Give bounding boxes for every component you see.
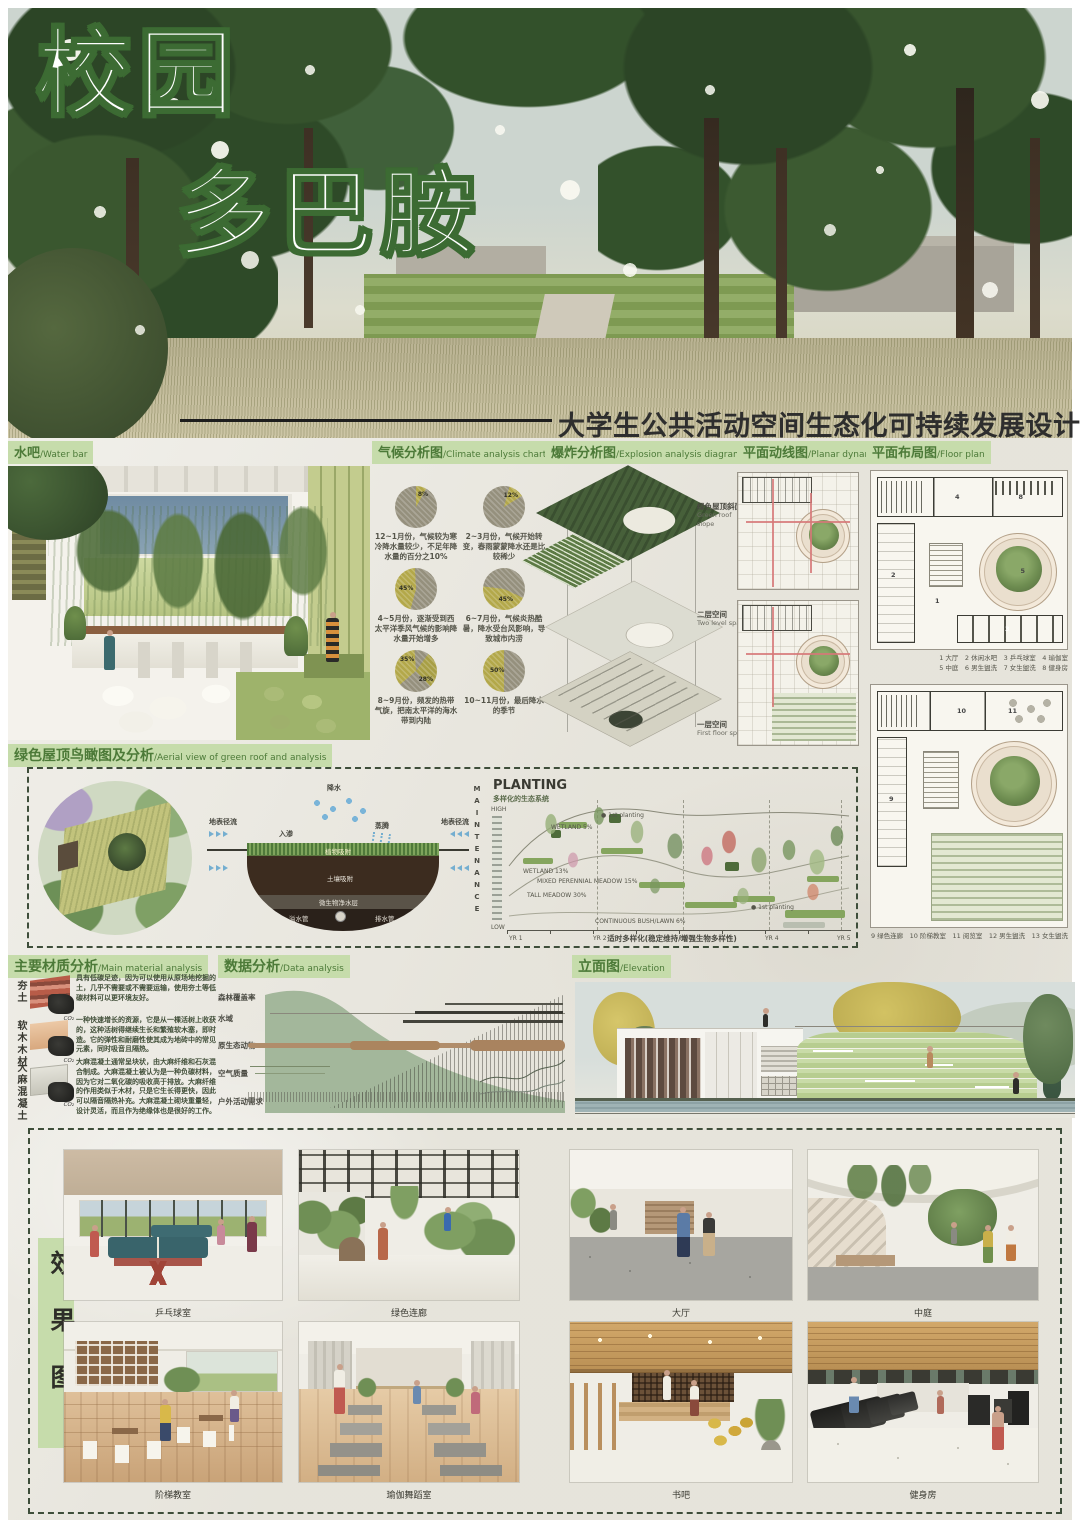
render-caption: 乒乓球室 (113, 1306, 233, 1319)
section-label-explosion: 爆炸分析图/Explosion analysis diagram (545, 441, 748, 464)
bench (836, 1255, 896, 1266)
stairs-block (929, 543, 963, 587)
ceiling (570, 1150, 792, 1189)
annotation-bush: CONTINUOUS BUSH/LAWN 6% (595, 918, 686, 925)
air-quality-line-1 (250, 1066, 330, 1067)
table-legs (121, 1261, 195, 1285)
stair-hatch (881, 695, 921, 727)
co2-label: CO₂ (64, 1102, 74, 1108)
climate-pie-cell-2: 12% 2~3月份，气候开始转变，春雨蒙蒙降水还是比较稀少 (462, 486, 546, 562)
render-caption: 大厅 (621, 1306, 741, 1319)
cork-text: 一种快速增长的资源，它是从一棵活树上收获的，这种活树得继续生长和繁殖软木塞，即时… (76, 1016, 216, 1055)
render-caption: 阶梯教室 (113, 1488, 233, 1501)
overflow-pipe-label: 溢水管 (289, 913, 309, 923)
greenroof-label-en: /Aerial view of green roof and analysis (154, 753, 326, 763)
pie-value-label-2: 28% (419, 676, 433, 683)
rooms-band (742, 477, 812, 503)
figure-yoga-right (471, 1392, 480, 1414)
render-caption: 绿色连廊 (349, 1306, 469, 1319)
circulation-line-h (746, 521, 850, 523)
runoff-arrows-left-lower (209, 865, 228, 871)
pie-chart-apr-may: 45% (395, 568, 437, 610)
annotation-tall-meadow: TALL MEADOW 30% (527, 892, 587, 899)
room-number: 2 (891, 571, 896, 579)
courtyard-tree (809, 520, 839, 550)
floor-plan-1: 1 2 3 4 5 8 (870, 470, 1068, 650)
room-number: 4 (955, 493, 960, 501)
figure-far (937, 1396, 944, 1414)
climate-pie-cell-6: 50% 10~11月份，最后降水的季节 (462, 650, 546, 716)
figure-far-left (610, 1210, 617, 1230)
pie-chart-aug-sep: 35% 28% (395, 650, 437, 692)
runoff-arrows-right-lower (450, 865, 469, 871)
section-label-elevation: 立面图/Elevation (572, 955, 671, 978)
hempcrete-text: 大麻混凝土通常呈块状，由大麻纤维和石灰混合制成。大麻混凝土被认为是一种负碳材料，… (76, 1058, 216, 1117)
annotation-wetland5: WETLAND 5% (551, 824, 593, 831)
circulation-line-h (746, 653, 850, 655)
figure-on-lawn (927, 1052, 933, 1068)
left-plants (570, 1186, 614, 1243)
cork-image: CO₂ (28, 1018, 74, 1062)
hempcrete-image: CO₂ (28, 1062, 74, 1106)
courtyard-tree (990, 756, 1040, 806)
render-atrium (808, 1150, 1038, 1300)
ceiling (64, 1150, 282, 1195)
room-number: 8 (1018, 493, 1023, 501)
greenroof-dashed-box: 降水 地表径流 入渗 蒸腾 地表径流 植物吸附 土壤吸附 微生物净水层 溢水管 … (27, 767, 858, 948)
small-window-grid (761, 1076, 801, 1096)
pie-caption: 10~11月份，最后降水的季节 (462, 696, 546, 716)
maintenance-vertical-label: MAINTENANCE (473, 785, 481, 940)
legend-line-2: 5 中庭 6 男生盥洗 7 女生盥洗 8 健身房 (939, 664, 1068, 674)
figure-on-roof (763, 1014, 768, 1027)
water-bar-label-zh: 水吧 (14, 446, 40, 461)
figure-woman (104, 636, 115, 670)
figure-backpack (677, 1213, 690, 1257)
figure-at-shelf (663, 1376, 671, 1400)
roof-terrace-hatch (772, 693, 856, 741)
base-line (575, 1113, 1075, 1114)
effects-dashed-box: 效果图 (28, 1128, 1062, 1514)
louvre-window-block (625, 1038, 701, 1098)
render-stepped-classroom (64, 1322, 282, 1482)
legend-line-3: 9 绿色连廊 10 阶梯教室 11 阅览室 12 男生盥洗 13 女生盥洗 (871, 932, 1068, 942)
axis-high-label: HIGH (491, 806, 506, 813)
second-floor-opening (616, 617, 684, 652)
figure-yellow (983, 1231, 993, 1263)
runoff-arrows-left-upper (209, 831, 228, 837)
water-bar-label-en: /Water bar (40, 450, 87, 460)
pie-caption: 4~5月份，逐渐受到西太平洋季风气候的影响降水量开始增多 (374, 614, 458, 644)
row-label-water: 水域 (218, 1013, 233, 1024)
plant-mass (160, 1364, 204, 1396)
figure-far (951, 1228, 957, 1244)
room-number: 3 (1005, 625, 1010, 633)
render-yoga-room (299, 1322, 519, 1482)
building-entrance (58, 841, 78, 872)
greenroof-label-zh: 绿色屋顶鸟瞰图及分析 (14, 748, 154, 764)
figure-orange (1006, 1231, 1016, 1261)
layer-microbe-label: 微生物净水层 (319, 897, 358, 907)
subtitle-divider-line (180, 419, 552, 422)
ground-line-left (207, 849, 249, 851)
pie-caption: 6~7月份，气候炎热酷暑，降水受台风影响，导致城市内涝 (462, 614, 546, 644)
poster-title-line2: 多巴胺 (176, 166, 482, 262)
data-label-en: /Data analysis (280, 964, 344, 974)
planar-label-zh: 平面动线图 (743, 446, 808, 461)
figure-right (1013, 1078, 1019, 1094)
axis-low-label: LOW (491, 924, 505, 931)
rain-label: 降水 (327, 783, 341, 793)
render-caption: 健身房 (863, 1488, 983, 1501)
overflow-pipe-icon (335, 911, 346, 922)
poster-title-line1: 校园 (36, 26, 240, 122)
poster: 校园 多巴胺 大学生公共活动空间生态化可持续发展设计 水吧/Water bar … (0, 0, 1080, 1527)
runoff-right-label: 地表径流 (441, 817, 469, 827)
bookshelf (75, 1341, 158, 1386)
circulation-line-v (772, 607, 774, 707)
table-1 (112, 1428, 138, 1434)
annotation-first-planting: ● 1st planting (601, 812, 644, 819)
tan-bar-thick-2 (470, 1040, 565, 1051)
material-name-rammed-earth: 夯土 (13, 980, 28, 1004)
courtyard-circle (796, 509, 850, 563)
runoff-arrows-right-upper (450, 831, 469, 837)
courtyard-tree (996, 546, 1042, 592)
planting-panel: PLANTING 多样化的生态系统 HIGH LOW YR 1 YR 2 YR … (489, 772, 855, 947)
pie-value-label: 12% (504, 492, 518, 499)
roof-opening (612, 501, 686, 539)
material-name-cork: 软木木材 (13, 1020, 28, 1068)
aerial-view-circle (38, 781, 192, 935)
figure-yoga-standing (334, 1370, 345, 1414)
green-roof-terrace (931, 833, 1063, 921)
left-wing (877, 523, 915, 643)
room-number: 11 (1008, 707, 1017, 715)
pie-chart-jun-jul: 45% (483, 568, 525, 610)
plant-left (356, 1376, 378, 1398)
wood-slat-ceiling (808, 1322, 1038, 1370)
stair-hatch (881, 481, 925, 513)
pie-chart-oct-nov: 50% (483, 650, 525, 692)
section-label-planar: 平面动线图/Planar dynamic (737, 441, 887, 464)
floor-plan-2: 9 10 11 (870, 684, 1068, 928)
rain-garden-diagram: 降水 地表径流 入渗 蒸腾 地表径流 植物吸附 土壤吸附 微生物净水层 溢水管 … (207, 777, 469, 945)
section-label-greenroof: 绿色屋顶鸟瞰图及分析/Aerial view of green roof and… (8, 744, 332, 767)
pie-value-label: 45% (399, 585, 413, 592)
layer-plant-label: 植物吸附 (325, 846, 351, 856)
climate-label-zh: 气候分析图 (378, 446, 443, 461)
mid-glass-panel (705, 1032, 757, 1098)
left-bar-seats (570, 1383, 619, 1460)
pie-chart-dec-jan: 8% (395, 486, 437, 528)
explosion-label-en: /Explosion analysis diagram (616, 450, 742, 460)
white-chairs (81, 1415, 234, 1469)
room-number: 10 (957, 707, 966, 715)
planar-dynamic-column (737, 464, 861, 748)
floor-plan-1-legend: 1 大厅 2 休闲水吧 3 乒乓球室 4 瑜伽室 5 中庭 6 男生盥洗 7 女… (939, 654, 1068, 674)
render-hall (570, 1150, 792, 1300)
elevation-label-zh: 立面图 (578, 959, 620, 975)
material-label-zh: 主要材质分析 (14, 959, 98, 975)
tan-bar-thick-1 (350, 1041, 440, 1050)
carbon-chunk (48, 1036, 74, 1056)
rammed-earth-text: 具有低碳足迹，因为可以使用从原场地挖掘的土，几乎不需要或不需要运输，使用夯土等低… (76, 974, 216, 1003)
ground-line-right (439, 849, 469, 851)
drain-pipe-label: 排水管 (375, 913, 395, 923)
white-poufs (88, 678, 248, 734)
ceiling-lights (570, 1328, 792, 1360)
gym-equipment-marks (995, 481, 1055, 495)
rammed-earth-image: CO₂ (28, 976, 74, 1020)
floor (299, 1255, 519, 1300)
runoff-left-label: 地表径流 (209, 817, 237, 827)
floorplan-label-zh: 平面布局图 (872, 446, 937, 461)
render-green-corridor (299, 1150, 519, 1300)
cafe-table (339, 1237, 365, 1261)
plant-illustrations (507, 796, 851, 930)
room-number: 1 (935, 597, 940, 605)
elevation-drawing (575, 982, 1075, 1118)
section-label-water-bar: 水吧/Water bar (8, 441, 93, 464)
pie-value-label: 50% (490, 667, 504, 674)
pingpong-room (957, 615, 1063, 643)
figure-running (849, 1383, 859, 1413)
elevation-label-en: /Elevation (620, 964, 665, 974)
carbon-chunk (48, 994, 74, 1014)
annotation-first-planting-2: ● 1st planting (751, 904, 794, 911)
circulation-line-v2 (810, 493, 812, 573)
courtyard-tree (809, 646, 839, 676)
climate-pie-cell-3: 45% 4~5月份，逐渐受到西太平洋季风气候的影响降水量开始增多 (374, 568, 458, 644)
figure-stretching (992, 1412, 1004, 1450)
player-right (247, 1222, 257, 1252)
hero-image: 校园 多巴胺 (8, 8, 1072, 438)
infiltration-label: 入渗 (279, 829, 293, 839)
pie-value-label: 35% (400, 656, 414, 663)
climate-label-en: /Climate analysis chart (443, 450, 546, 460)
pie-value-label: 45% (499, 596, 513, 603)
planar-plan-lower (737, 600, 859, 746)
floorplan-column: 1 2 3 4 5 8 1 大厅 2 休闲水吧 3 乒乓球室 4 瑜伽室 5 中… (866, 462, 1072, 948)
planting-caption: 适时多样化(稳定维持/增强生物多样性) (489, 933, 855, 944)
basin: 植物吸附 土壤吸附 微生物净水层 溢水管 排水管 (247, 843, 439, 931)
climate-pie-cell-4: 45% 6~7月份，气候炎热酷暑，降水受台风影响，导致城市内涝 (462, 568, 546, 644)
left-gradient-bar (492, 816, 502, 920)
room-number: 9 (889, 795, 894, 803)
figure-yellow-shirt (160, 1405, 171, 1441)
green-tree-right (1023, 994, 1073, 1084)
pie-value-label: 8% (418, 491, 428, 498)
render-pingpong-room (64, 1150, 282, 1300)
layer-soil-label: 土壤吸附 (327, 873, 353, 883)
render-caption: 瑜伽舞蹈室 (349, 1488, 469, 1501)
floor-plan-2-legend: 9 绿色连廊 10 阶梯教室 11 阅览室 12 男生盥洗 13 女生盥洗 (871, 932, 1068, 942)
annotation-wetland13: WETLAND 13% (523, 868, 568, 875)
roof-rail (795, 1026, 1045, 1027)
figure-man-striped (326, 618, 339, 662)
floorplan-label-en: /Floor plan (937, 450, 985, 460)
courtyard-circle (796, 635, 850, 689)
dark-bar-1 (445, 1003, 563, 1005)
data-label-zh: 数据分析 (224, 959, 280, 975)
render-caption: 书吧 (621, 1488, 741, 1501)
material-name-hempcrete: 大麻混凝土 (13, 1062, 28, 1122)
roof-tree-opening (108, 833, 146, 871)
green-stools (254, 680, 364, 736)
courtyard-circle (971, 741, 1057, 827)
figure-reading (378, 1228, 388, 1260)
courtyard-circle (979, 533, 1057, 611)
material-label-en: /Main material analysis (98, 964, 202, 974)
hanging-plant (387, 1186, 422, 1225)
section-label-climate: 气候分析图/Climate analysis chart (372, 441, 552, 464)
section-label-data: 数据分析/Data analysis (218, 955, 350, 978)
render-caption: 中庭 (863, 1306, 983, 1319)
carbon-chunk (48, 1082, 74, 1102)
outdoor-demand-hatch (248, 1092, 565, 1102)
pingpong-table-back (151, 1225, 212, 1237)
figure-walking (690, 1386, 699, 1416)
water-strip (575, 1101, 1075, 1112)
water-bar-render (8, 466, 370, 740)
facade-white-dashes (805, 1042, 1029, 1092)
planar-plan-upper (737, 472, 859, 590)
pie-caption: 8~9月份，频发的热带气旋，把南太平洋的海水带到内陆 (374, 696, 458, 726)
stairs-block (923, 751, 959, 809)
legend-line-1: 1 大厅 2 休闲水吧 3 乒乓球室 4 瑜伽室 (939, 654, 1068, 664)
explosion-label-zh: 爆炸分析图 (551, 446, 616, 461)
room-number: 5 (1020, 567, 1025, 575)
explosion-diagram: 绿色屋顶斜面 Green roof slope 二层空间 Two level s… (545, 462, 737, 750)
poster-subtitle: 大学生公共活动空间生态化可持续发展设计 (558, 404, 1080, 443)
annotation-meadow: MIXED PERENNIAL MEADOW 15% (537, 878, 637, 885)
vent-panel (761, 1046, 801, 1072)
plant-pot-right (284, 616, 308, 656)
render-book-bar (570, 1322, 792, 1482)
player-left (90, 1231, 99, 1257)
dark-bar-2 (415, 1011, 563, 1014)
plant-pot-left (64, 606, 86, 640)
pie-chart-feb-mar: 12% (483, 486, 525, 528)
circulation-line-v (772, 479, 774, 587)
plant-right (444, 1376, 466, 1398)
figure-yoga-far (413, 1386, 421, 1404)
figure-right (230, 1396, 239, 1422)
row-label-forest: 森林覆盖率 (218, 992, 256, 1003)
data-analysis-chart: 森林覆盖率 水域 原生态动物 空气质量 户外活动需求 (215, 980, 567, 1115)
pie-caption: 12~1月份，气候较为寒冷降水量较少，不足年降水量的百分之10% (374, 532, 458, 562)
figure-far (444, 1213, 451, 1231)
climate-pie-cell-5: 35% 28% 8~9月份，频发的热带气旋，把南太平洋的海水带到内陆 (374, 650, 458, 726)
row-label-air: 空气质量 (218, 1068, 248, 1079)
floor (808, 1267, 1038, 1300)
rain-droplets (307, 795, 377, 823)
bookshelf-wall (632, 1373, 734, 1402)
player-mid (217, 1225, 225, 1245)
pingpong-table-front (108, 1237, 208, 1258)
air-quality-line-2 (255, 1073, 325, 1074)
climate-pie-cell-1: 8% 12~1月份，气候较为寒冷降水量较少，不足年降水量的百分之10% (374, 486, 458, 562)
render-gym (808, 1322, 1038, 1482)
table-2 (199, 1415, 223, 1421)
dark-bar-3 (403, 1020, 563, 1023)
floor (570, 1450, 792, 1482)
section-label-floorplan: 平面布局图/Floor plan (866, 441, 991, 464)
figure-companion (703, 1218, 715, 1256)
planting-title: PLANTING (493, 778, 567, 793)
rooms-band (742, 605, 812, 631)
